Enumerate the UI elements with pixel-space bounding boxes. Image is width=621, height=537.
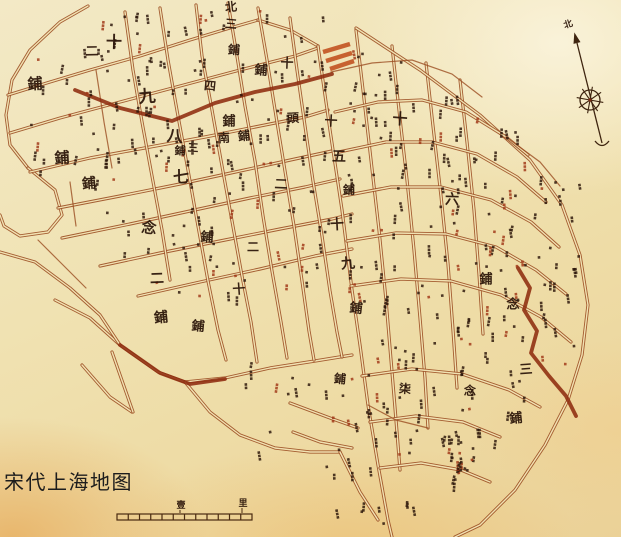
- tiny-label-mark: [106, 212, 109, 215]
- mark-dot: [112, 127, 115, 130]
- mark-dot: [198, 131, 201, 134]
- tiny-label-mark: [539, 176, 542, 186]
- mark-dot: [540, 187, 543, 190]
- mark-dot: [165, 162, 168, 165]
- mark-dot: [456, 102, 459, 105]
- mark-dot: [371, 229, 374, 232]
- mark-dot: [320, 61, 323, 64]
- mark-dot: [476, 121, 479, 124]
- mark-dot: [383, 309, 386, 312]
- mark-dot: [378, 74, 381, 77]
- mark-dot: [322, 16, 325, 19]
- tiny-label-mark: [39, 170, 42, 176]
- tiny-label-mark: [462, 289, 465, 292]
- mark-dot: [184, 26, 187, 29]
- mark-dot: [239, 173, 242, 176]
- mark-dot: [355, 82, 358, 85]
- mark-dot: [349, 102, 352, 105]
- mark-dot: [198, 128, 201, 131]
- mark-dot: [266, 18, 269, 21]
- street-outline: [6, 6, 88, 168]
- mark-dot: [486, 306, 489, 309]
- tiny-label-mark: [308, 383, 311, 386]
- mark-dot: [266, 21, 269, 24]
- mark-dot: [491, 333, 494, 336]
- mark-dot: [540, 179, 543, 182]
- mark-dot: [375, 121, 378, 124]
- mark-dot: [123, 252, 126, 255]
- tiny-label-mark: [184, 89, 187, 95]
- mark-dot: [510, 235, 513, 238]
- mark-dot: [542, 316, 545, 319]
- mark-dot: [447, 161, 450, 164]
- mark-dot: [505, 255, 508, 258]
- district-label: 十: [106, 32, 122, 51]
- mark-dot: [500, 135, 503, 138]
- tiny-label-mark: [128, 79, 131, 82]
- tiny-label-mark: [450, 99, 454, 105]
- district-label: 南: [217, 130, 230, 146]
- mark-dot: [389, 75, 392, 78]
- tiny-label-mark: [407, 308, 410, 314]
- map-caption: 宋代上海地图: [4, 466, 133, 495]
- district-label: 鋪: [333, 371, 346, 387]
- tiny-label-mark: [408, 452, 411, 455]
- tiny-label-mark: [375, 117, 378, 127]
- mark-dot: [312, 191, 315, 194]
- mark-dot: [451, 213, 454, 216]
- mark-dot: [36, 146, 39, 149]
- tiny-label-mark: [60, 64, 64, 74]
- mark-dot: [484, 352, 487, 355]
- mark-dot: [199, 18, 202, 21]
- district-label: 柒: [399, 381, 412, 397]
- tiny-label-mark: [433, 342, 436, 345]
- mark-dot: [448, 439, 451, 442]
- mark-dot: [509, 197, 512, 200]
- mark-dot: [455, 434, 458, 437]
- mark-dot: [405, 504, 408, 507]
- mark-dot: [452, 489, 455, 492]
- tiny-label-mark: [504, 331, 508, 337]
- mark-dot: [138, 47, 141, 50]
- scale-bar: 壹里: [117, 498, 252, 520]
- mark-dot: [445, 100, 448, 103]
- mark-dot: [433, 393, 436, 396]
- mark-dot: [236, 303, 239, 306]
- mark-dot: [287, 393, 290, 396]
- mark-dot: [301, 266, 304, 269]
- mark-dot: [104, 163, 107, 166]
- tiny-label-mark: [199, 15, 202, 25]
- street-outline: [160, 8, 226, 360]
- mark-dot: [457, 443, 460, 446]
- tiny-label-mark: [277, 164, 280, 167]
- tiny-label-mark: [472, 447, 475, 450]
- tiny-label-mark: [216, 265, 219, 268]
- tiny-label-mark: [257, 451, 261, 461]
- district-label: 鋪: [237, 127, 251, 143]
- tiny-label-mark: [348, 174, 351, 177]
- mark-dot: [185, 259, 188, 262]
- mark-dot: [468, 408, 471, 411]
- mark-dot: [302, 160, 305, 163]
- mark-dot: [199, 60, 202, 63]
- mark-dot: [384, 94, 387, 97]
- mark-dot: [442, 444, 445, 447]
- tiny-label-mark: [432, 387, 436, 397]
- street-outline: [258, 20, 318, 46]
- mark-dot: [578, 184, 581, 187]
- tiny-label-mark: [123, 15, 126, 18]
- mark-dot: [147, 248, 150, 251]
- mark-dot: [185, 255, 188, 258]
- mark-dot: [549, 247, 552, 250]
- mark-dot: [358, 156, 361, 159]
- minor-street: [331, 60, 482, 97]
- mark-dot: [462, 289, 465, 292]
- mark-dot: [210, 11, 213, 14]
- tiny-label-mark: [349, 214, 352, 223]
- tiny-label-mark: [240, 94, 243, 97]
- mark-dot: [476, 117, 479, 120]
- mark-dot: [353, 89, 356, 92]
- tiny-label-mark: [468, 408, 471, 411]
- mark-dot: [554, 181, 557, 184]
- mark-dot: [500, 269, 503, 272]
- mark-dot: [543, 283, 546, 286]
- mark-dot: [428, 176, 431, 179]
- mark-dot: [415, 368, 418, 371]
- tiny-label-mark: [333, 474, 336, 480]
- tiny-label-mark: [367, 374, 370, 377]
- mark-dot: [386, 423, 389, 426]
- mark-dot: [101, 58, 104, 61]
- tiny-label-mark: [198, 295, 201, 298]
- mark-dot: [300, 40, 303, 43]
- mark-dot: [266, 138, 269, 141]
- tiny-label-mark: [315, 263, 318, 269]
- mark-dot: [189, 266, 192, 269]
- district-label: 十: [280, 55, 294, 71]
- tiny-label-mark: [342, 394, 345, 397]
- tiny-label-mark: [389, 71, 393, 81]
- mark-dot: [448, 164, 451, 167]
- mark-dot: [396, 88, 399, 91]
- tiny-label-mark: [352, 50, 356, 60]
- mark-dot: [134, 152, 137, 155]
- mark-dot: [131, 139, 134, 142]
- mark-dot: [441, 294, 444, 297]
- tiny-label-mark: [357, 55, 360, 58]
- mark-dot: [96, 180, 99, 183]
- mark-dot: [510, 374, 513, 377]
- mark-dot: [354, 85, 357, 88]
- mark-dot: [285, 288, 288, 291]
- tiny-label-mark: [291, 377, 294, 380]
- mark-dot: [209, 255, 212, 258]
- district-label: 鋪: [153, 308, 169, 326]
- mark-dot: [379, 137, 382, 140]
- mark-dot: [375, 445, 378, 448]
- tiny-label-mark: [554, 181, 557, 184]
- mark-dot: [384, 124, 387, 127]
- mark-dot: [136, 32, 139, 35]
- mark-dot: [395, 147, 398, 150]
- mark-dot: [448, 448, 451, 451]
- mark-dot: [305, 282, 308, 285]
- mark-dot: [160, 149, 163, 152]
- mark-dot: [210, 171, 213, 174]
- mark-dot: [494, 443, 497, 446]
- mark-dot: [207, 139, 210, 142]
- mark-dot: [106, 212, 109, 215]
- mark-dot: [43, 159, 46, 162]
- mark-dot: [36, 149, 39, 152]
- mark-dot: [455, 139, 458, 142]
- mark-dot: [39, 170, 42, 173]
- mark-dot: [456, 230, 459, 233]
- tiny-label-mark: [420, 399, 423, 409]
- mark-dot: [406, 501, 409, 504]
- mark-dot: [394, 218, 397, 221]
- district-label: 念: [506, 296, 520, 312]
- mark-dot: [440, 132, 443, 135]
- mark-dot: [491, 336, 494, 339]
- tiny-label-mark: [269, 162, 272, 165]
- mark-dot: [275, 387, 278, 390]
- mark-dot: [75, 156, 78, 159]
- tiny-label-mark: [470, 458, 473, 461]
- mark-dot: [393, 269, 396, 272]
- tiny-label-mark: [456, 96, 460, 106]
- mark-dot: [555, 263, 558, 266]
- mark-dot: [358, 296, 361, 299]
- mark-dot: [351, 472, 354, 475]
- mark-dot: [541, 356, 544, 359]
- mark-dot: [380, 229, 383, 232]
- district-label: 鋪: [349, 300, 364, 317]
- tiny-label-mark: [484, 352, 487, 358]
- tiny-label-mark: [294, 388, 298, 398]
- mark-dot: [318, 226, 321, 229]
- mark-dot: [306, 110, 309, 113]
- mark-dot: [443, 160, 446, 163]
- mark-dot: [392, 233, 395, 236]
- mark-dot: [505, 130, 508, 133]
- tiny-label-mark: [549, 247, 552, 250]
- tiny-label-mark: [353, 110, 356, 113]
- mark-dot: [478, 432, 481, 435]
- mark-dot: [80, 116, 83, 119]
- tiny-label-mark: [105, 152, 108, 162]
- mark-dot: [291, 377, 294, 380]
- district-label: 十: [330, 216, 345, 234]
- tiny-label-mark: [242, 63, 245, 72]
- tiny-label-mark: [112, 178, 115, 181]
- mark-dot: [61, 68, 64, 71]
- tiny-label-mark: [475, 158, 478, 161]
- mark-dot: [549, 284, 552, 287]
- mark-dot: [457, 265, 460, 268]
- mark-dot: [506, 136, 509, 139]
- compass-north-label: 北: [562, 17, 574, 31]
- mark-dot: [503, 203, 506, 206]
- mark-dot: [185, 33, 188, 36]
- tiny-label-mark: [230, 161, 234, 171]
- tiny-label-mark: [155, 154, 158, 157]
- mark-dot: [88, 97, 91, 100]
- mark-dot: [230, 213, 233, 216]
- mark-dot: [256, 199, 259, 202]
- mark-dot: [209, 258, 212, 261]
- mark-dot: [306, 285, 309, 288]
- tiny-label-mark: [92, 132, 95, 135]
- mark-dot: [562, 188, 565, 191]
- district-label: 鋪: [81, 174, 96, 192]
- mark-dot: [579, 187, 582, 190]
- mark-dot: [472, 447, 475, 450]
- tiny-label-mark: [540, 187, 543, 190]
- mark-dot: [136, 110, 139, 113]
- tiny-label-mark: [521, 336, 524, 342]
- tiny-label-mark: [167, 156, 170, 162]
- mark-dot: [457, 334, 460, 337]
- mark-dot: [281, 77, 284, 80]
- mark-dot: [272, 195, 275, 198]
- mark-dot: [342, 394, 345, 397]
- mark-dot: [488, 317, 491, 320]
- mark-dot: [392, 237, 395, 240]
- mark-dot: [539, 183, 542, 186]
- street-outline: [293, 432, 352, 448]
- tiny-label-mark: [305, 271, 308, 274]
- mark-dot: [348, 287, 351, 290]
- mark-dot: [488, 213, 491, 216]
- mark-dot: [382, 522, 385, 525]
- tiny-label-mark: [453, 222, 456, 225]
- mark-dot: [394, 215, 397, 218]
- mark-dot: [190, 211, 193, 214]
- mark-dot: [92, 132, 95, 135]
- mark-dot: [487, 323, 490, 326]
- mark-dot: [396, 85, 399, 88]
- mark-dot: [369, 412, 372, 415]
- minor-street: [396, 420, 428, 428]
- mark-dot: [493, 446, 496, 449]
- mark-dot: [544, 198, 547, 201]
- mark-dot: [534, 213, 537, 216]
- tiny-label-mark: [353, 283, 356, 286]
- tiny-label-mark: [540, 302, 543, 312]
- tiny-label-mark: [288, 209, 291, 212]
- tiny-label-mark: [147, 248, 150, 254]
- tiny-label-mark: [287, 393, 290, 396]
- tiny-label-mark: [384, 121, 387, 127]
- tiny-label-mark: [475, 262, 478, 265]
- tiny-label-mark: [395, 147, 398, 156]
- mark-dot: [257, 451, 260, 454]
- mark-dot: [493, 230, 496, 233]
- mark-dot: [148, 115, 151, 118]
- mark-dot: [367, 374, 370, 377]
- tiny-label-mark: [457, 436, 460, 445]
- tiny-label-mark: [335, 509, 339, 519]
- mark-dot: [292, 210, 295, 213]
- tiny-label-mark: [445, 96, 448, 106]
- mark-dot: [336, 516, 339, 519]
- tiny-label-mark: [518, 380, 521, 383]
- mark-dot: [465, 184, 468, 187]
- tiny-label-mark: [455, 136, 458, 142]
- district-label: 三: [187, 141, 199, 155]
- tiny-label-mark: [428, 245, 431, 254]
- mark-dot: [184, 252, 187, 255]
- mark-dot: [475, 262, 478, 265]
- tiny-label-mark: [110, 23, 113, 26]
- mark-dot: [199, 73, 202, 76]
- tiny-label-mark: [451, 457, 454, 460]
- tiny-label-mark: [400, 61, 403, 64]
- mark-dot: [230, 164, 233, 167]
- mark-dot: [443, 157, 446, 160]
- mark-dot: [375, 124, 378, 127]
- mark-dot: [321, 65, 324, 68]
- tiny-label-mark: [524, 264, 527, 267]
- mark-dot: [135, 19, 138, 22]
- mark-dot: [142, 212, 145, 215]
- mark-dot: [39, 174, 42, 177]
- mark-dot: [302, 244, 305, 247]
- mark-dot: [484, 186, 487, 189]
- mark-dot: [412, 360, 415, 363]
- tiny-label-mark: [227, 159, 230, 165]
- tiny-label-mark: [553, 282, 556, 291]
- tiny-label-mark: [549, 281, 552, 290]
- mark-dot: [382, 402, 385, 405]
- tiny-label-mark: [380, 229, 383, 232]
- mark-dot: [397, 366, 400, 369]
- tiny-label-mark: [281, 73, 284, 82]
- mark-dot: [430, 225, 433, 228]
- mark-dot: [240, 94, 243, 97]
- mark-dot: [409, 438, 412, 441]
- mark-dot: [276, 251, 279, 254]
- mark-dot: [398, 396, 401, 399]
- mark-dot: [166, 120, 169, 123]
- tiny-label-mark: [137, 76, 141, 86]
- mark-dot: [323, 155, 326, 158]
- mark-dot: [333, 474, 336, 477]
- tiny-label-mark: [392, 233, 395, 239]
- mark-dot: [113, 124, 116, 127]
- mark-dot: [167, 31, 170, 34]
- tiny-label-mark: [421, 284, 424, 287]
- accent-street: [518, 268, 576, 416]
- tiny-label-mark: [322, 16, 325, 22]
- mark-dot: [146, 66, 149, 69]
- mark-dot: [450, 453, 453, 456]
- mark-dot: [347, 423, 350, 426]
- tiny-label-mark: [381, 339, 385, 345]
- mark-dot: [152, 137, 155, 140]
- mark-dot: [314, 60, 317, 63]
- mark-dot: [521, 260, 524, 263]
- mark-dot: [33, 158, 36, 161]
- district-label: 鋪: [191, 318, 205, 335]
- mark-dot: [420, 399, 423, 402]
- mark-dot: [198, 223, 201, 226]
